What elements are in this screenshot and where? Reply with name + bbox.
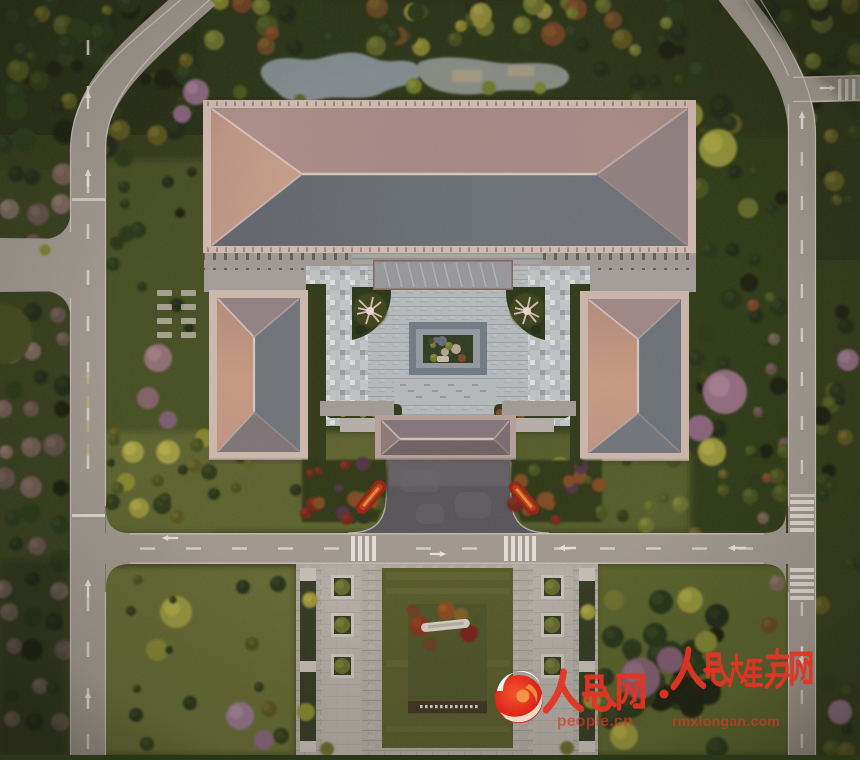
svg-text:people.cn: people.cn: [557, 713, 633, 730]
svg-text:rmxiongan.com: rmxiongan.com: [672, 713, 780, 729]
